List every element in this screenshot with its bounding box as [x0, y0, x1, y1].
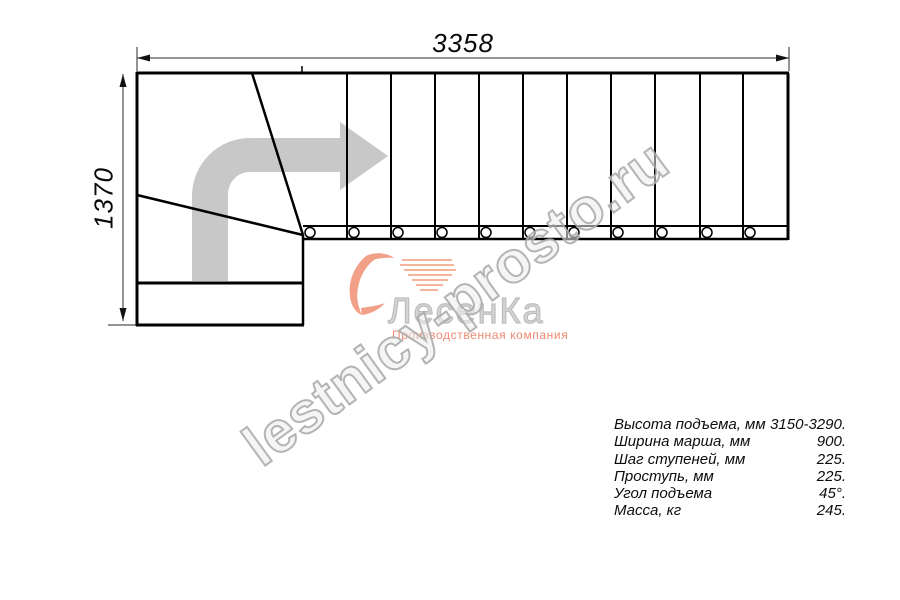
baluster-circle — [437, 228, 447, 238]
spec-value: 900. — [817, 433, 846, 450]
spec-label: Угол подъема — [614, 485, 712, 502]
baluster-circle — [305, 228, 315, 238]
spec-label: Высота подъема, мм — [614, 416, 766, 433]
baluster-circle — [657, 228, 667, 238]
page: 3358 1370 ЛесенКа Производственная компа… — [0, 0, 900, 600]
spec-row: Ширина марша, мм900. — [614, 433, 846, 450]
spec-row: Проступь, мм225. — [614, 468, 846, 485]
baluster-circle — [393, 228, 403, 238]
baluster-circle — [745, 228, 755, 238]
baluster-circle — [702, 228, 712, 238]
spec-label: Масса, кг — [614, 502, 681, 519]
spec-value: 45°. — [819, 485, 846, 502]
dimension-height-label: 1370 — [89, 167, 120, 229]
spec-row: Высота подъема, мм3150-3290. — [614, 416, 846, 433]
spec-value: 245. — [817, 502, 846, 519]
spec-label: Шаг ступеней, мм — [614, 451, 745, 468]
baluster-circle — [349, 228, 359, 238]
spec-value: 225. — [817, 468, 846, 485]
spec-row: Угол подъема45°. — [614, 485, 846, 502]
spec-label: Ширина марша, мм — [614, 433, 750, 450]
spec-value: 225. — [817, 451, 846, 468]
dimension-width-label: 3358 — [137, 28, 789, 59]
spec-row: Шаг ступеней, мм225. — [614, 451, 846, 468]
spec-table: Высота подъема, мм3150-3290.Ширина марша… — [614, 416, 846, 520]
spec-label: Проступь, мм — [614, 468, 714, 485]
spec-row: Масса, кг245. — [614, 502, 846, 519]
spec-value: 3150-3290. — [770, 416, 846, 433]
